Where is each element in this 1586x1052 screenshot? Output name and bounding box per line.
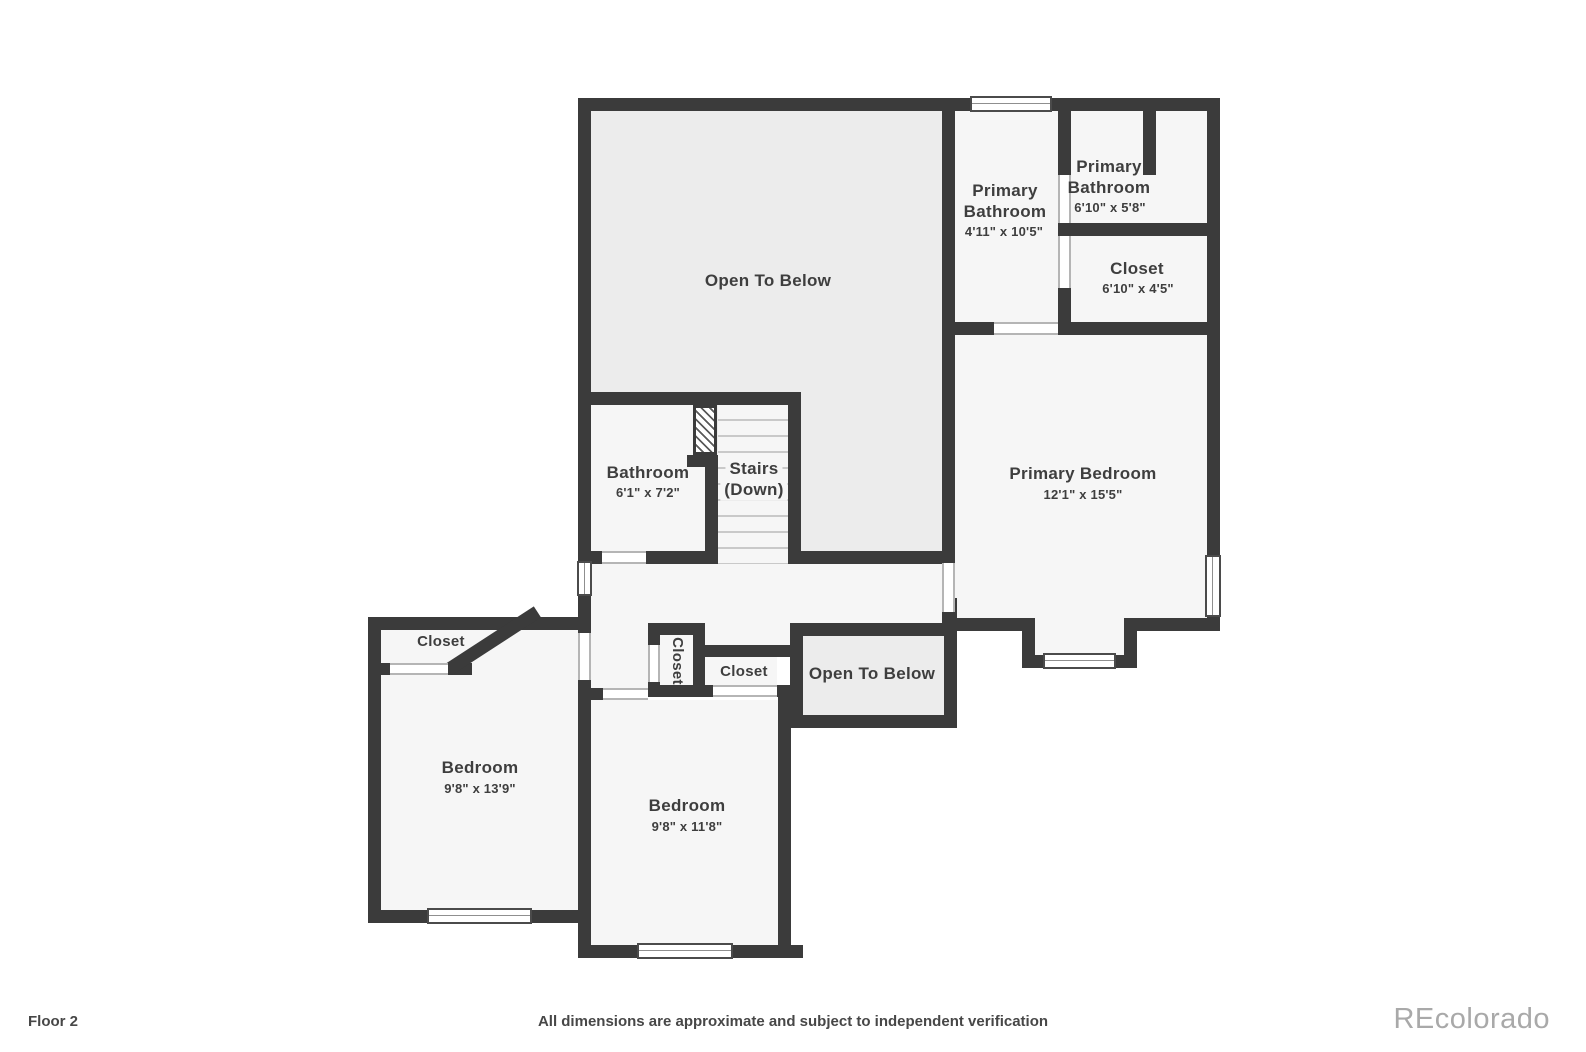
wall	[705, 645, 790, 657]
primary-bedroom-bay-floor	[1035, 618, 1124, 655]
hallway-floor	[591, 564, 942, 623]
room-primary-bathroom-2-dims: 6'10" x 5'8"	[1074, 200, 1146, 216]
wall	[790, 715, 957, 728]
room-closet-left-label: Closet	[417, 633, 465, 651]
room-bathroom-dims: 6'1" x 7'2"	[616, 485, 680, 501]
door-opening	[578, 633, 591, 680]
room-closet-vertical-label: Closet	[668, 637, 686, 685]
disclaimer-text: All dimensions are approximate and subje…	[0, 1013, 1586, 1030]
recolorado-watermark: REcolorado	[1393, 1003, 1550, 1036]
room-primary-bathroom-2-label-line2: Bathroom	[1068, 178, 1151, 198]
room-primary-bathroom-1-label-line1: Primary	[972, 181, 1037, 201]
wall	[790, 623, 957, 636]
wall	[1124, 618, 1220, 631]
wall	[578, 392, 801, 405]
door-opening	[1058, 236, 1071, 288]
room-primary-bathroom-1-dims: 4'11" x 10'5"	[965, 224, 1043, 240]
door-opening	[603, 688, 648, 700]
wall	[1207, 98, 1220, 631]
chase-hatch	[693, 405, 717, 455]
room-open-to-below-main-label: Open To Below	[705, 271, 831, 291]
wall	[648, 623, 660, 645]
room-primary-bedroom-dims: 12'1" x 15'5"	[1044, 487, 1123, 503]
floor-plan: Open To Below Primary Bathroom 4'11" x 1…	[0, 0, 1586, 1052]
wall	[801, 551, 955, 564]
room-closet-hall-label: Closet	[720, 663, 768, 681]
wall	[777, 685, 790, 697]
floor-plan-page: Open To Below Primary Bathroom 4'11" x 1…	[0, 0, 1586, 1052]
wall	[705, 685, 713, 697]
room-bedroom-left-label: Bedroom	[442, 758, 519, 778]
window	[637, 943, 733, 959]
door-opening	[602, 551, 646, 564]
wall	[368, 617, 591, 630]
wall	[368, 663, 390, 675]
room-primary-bathroom-1-label-line2: Bathroom	[964, 202, 1047, 222]
door-opening	[648, 645, 660, 682]
stairs-label: Stairs	[725, 458, 782, 480]
stairs-direction-label: (Down)	[720, 479, 787, 501]
room-closet-primary-dims: 6'10" x 4'5"	[1102, 281, 1174, 297]
door-opening	[994, 322, 1058, 335]
wall	[1058, 98, 1071, 175]
window	[577, 561, 592, 596]
wall	[648, 685, 705, 697]
wall	[705, 455, 718, 564]
window	[1043, 653, 1116, 669]
wall	[578, 98, 1220, 111]
room-primary-bathroom-2-label-line1: Primary	[1076, 157, 1141, 177]
window	[1205, 555, 1221, 617]
wall	[1058, 288, 1071, 322]
wall	[591, 688, 603, 700]
room-open-to-below-small-label: Open To Below	[809, 664, 935, 684]
door-opening	[713, 685, 777, 697]
door-opening	[390, 663, 448, 675]
wall	[578, 98, 591, 562]
wall	[1058, 223, 1220, 236]
room-bedroom-left-dims: 9'8" x 13'9"	[444, 781, 516, 797]
wall	[778, 697, 791, 957]
door-opening	[942, 563, 955, 612]
room-primary-bedroom-label: Primary Bedroom	[1009, 464, 1156, 484]
room-bathroom-label: Bathroom	[607, 463, 690, 483]
wall	[942, 322, 994, 335]
hallway-notch-floor	[705, 623, 790, 645]
room-closet-primary-label: Closet	[1110, 259, 1164, 279]
wall	[1143, 98, 1156, 175]
window	[970, 96, 1052, 112]
wall	[646, 551, 718, 564]
room-bedroom-middle-label: Bedroom	[649, 796, 726, 816]
wall	[788, 405, 801, 564]
window	[427, 908, 532, 924]
wall	[687, 455, 707, 467]
wall	[1058, 322, 1220, 335]
room-bedroom-middle-dims: 9'8" x 11'8"	[652, 819, 723, 835]
